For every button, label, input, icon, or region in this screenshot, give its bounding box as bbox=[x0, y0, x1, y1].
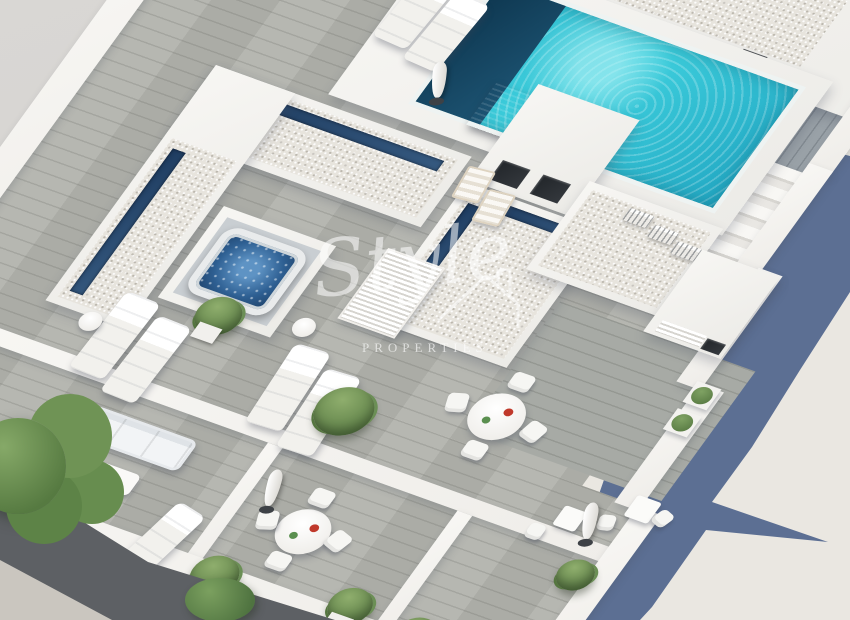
street-shrub bbox=[185, 578, 255, 620]
rooftop-render: Style PROPERTIES bbox=[0, 0, 850, 620]
